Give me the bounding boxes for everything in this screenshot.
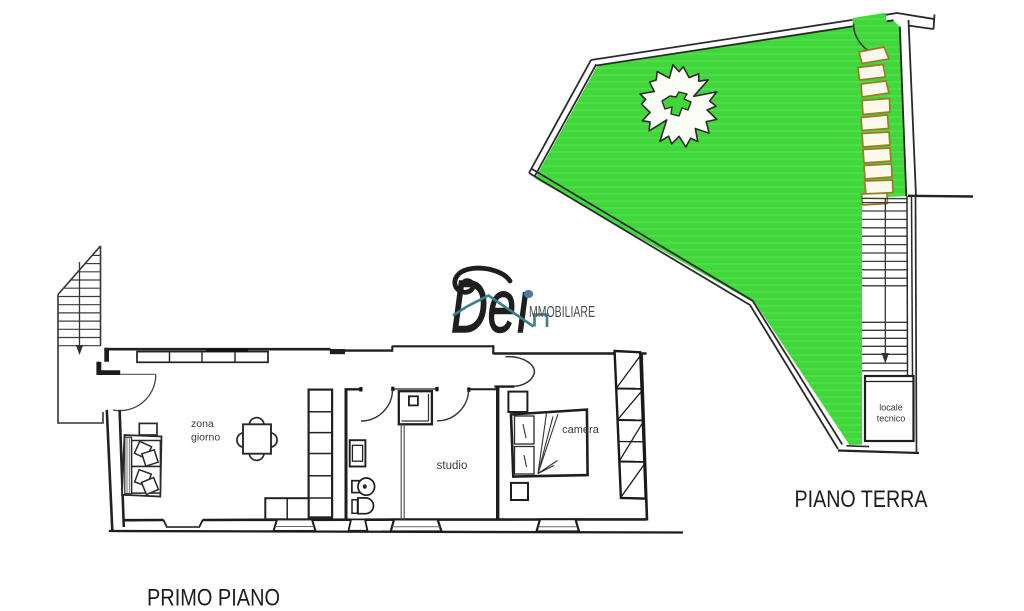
svg-text:PIANO TERRA: PIANO TERRA <box>795 486 929 513</box>
svg-text:studio: studio <box>437 460 468 472</box>
svg-text:camera: camera <box>562 424 600 436</box>
svg-text:giorno: giorno <box>191 432 220 444</box>
svg-text:zona: zona <box>191 418 214 430</box>
svg-text:PRIMO PIANO: PRIMO PIANO <box>147 585 280 611</box>
svg-text:locale: locale <box>879 403 903 413</box>
svg-text:MMOBILIARE: MMOBILIARE <box>529 304 595 321</box>
svg-text:tecnico: tecnico <box>877 414 906 424</box>
svg-text:Deı: Deı <box>451 265 530 348</box>
